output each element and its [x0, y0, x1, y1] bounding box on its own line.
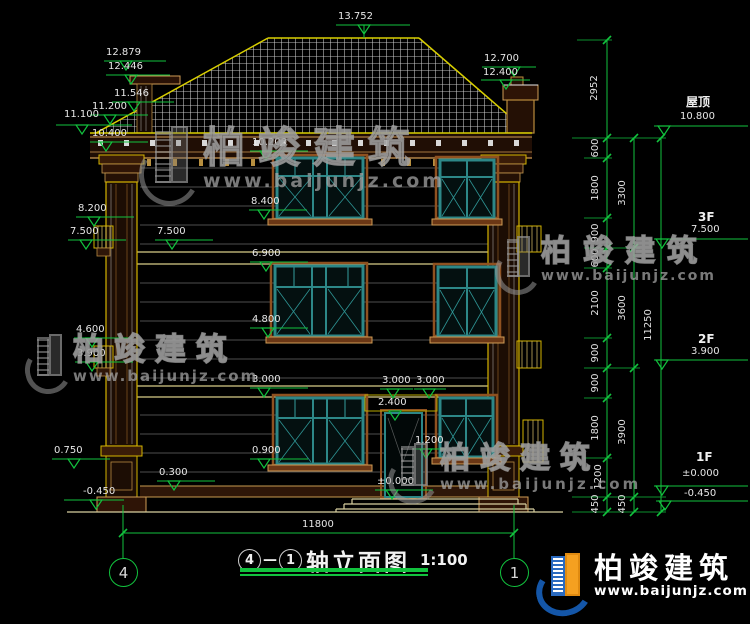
floor-name-2f: 2F [698, 333, 715, 345]
chain-dim: 600 [591, 248, 601, 267]
title-underline-thin [240, 574, 428, 576]
window-2f-right [430, 264, 504, 343]
elevation-label: 11.100 [64, 110, 99, 120]
elevation-label: 2.400 [378, 398, 407, 408]
floor-name-3f: 3F [698, 211, 715, 223]
elevation-label: ±0.000 [377, 477, 414, 487]
title-scale: 1:100 [420, 551, 468, 569]
title-underline-thick [240, 568, 428, 572]
elevation-drawing-linework [0, 0, 750, 624]
elevation-label: 3.900 [77, 349, 106, 359]
elevation-label: 0.900 [252, 446, 281, 456]
floor-name-1f: 1F [696, 451, 713, 463]
elevation-label: 1.200 [415, 436, 444, 446]
roof-outline [96, 38, 529, 133]
elevation-label: 12.446 [108, 62, 143, 72]
elevation-label: 12.879 [106, 48, 141, 58]
window-3f-center [268, 155, 372, 225]
chain-dim: 3900 [618, 419, 628, 444]
chain-dim: 2952 [590, 75, 600, 100]
elevation-label: 8.200 [78, 204, 107, 214]
chain-dim: 2100 [591, 290, 601, 315]
elevation-label: 3.000 [382, 376, 411, 386]
elevation-label: 12.700 [484, 54, 519, 64]
cad-elevation-screenshot: 13.752 12.879 12.446 12.700 12.400 11.54… [0, 0, 750, 624]
chain-dim: 900 [591, 373, 601, 392]
roof-left-eave-detail [130, 76, 180, 133]
window-3f-right [432, 157, 502, 225]
elevation-label: -0.450 [83, 487, 115, 497]
floor-elevation-1f: ±0.000 [682, 469, 719, 479]
chain-dim: 3300 [618, 180, 628, 205]
window-1f-right [432, 395, 501, 464]
elevation-label: 10.200 [252, 138, 287, 148]
elevation-label: 6.900 [252, 249, 281, 259]
chain-dim: 3600 [618, 295, 628, 320]
title-axis-from: 4 [245, 553, 254, 568]
floor-name-roof: 屋顶 [686, 96, 710, 108]
elevation-label: 7.500 [70, 227, 99, 237]
elevation-label: 3.000 [252, 375, 281, 385]
floor-elevation-ground: -0.450 [684, 489, 716, 499]
elevation-label: 12.400 [483, 68, 518, 78]
axis-bubble-4-label: 4 [119, 564, 129, 582]
chain-dim: 1800 [591, 415, 601, 440]
elevation-label: 7.500 [157, 227, 186, 237]
wall-plinth [140, 486, 488, 497]
chain-dim: 600 [591, 138, 601, 157]
elevation-label: 8.400 [251, 197, 280, 207]
chain-dim: 1200 [594, 464, 604, 489]
axis-bubble-1-label: 1 [510, 564, 520, 582]
elevation-label: 13.752 [338, 12, 373, 22]
floor-elevation-roof: 10.800 [680, 112, 715, 122]
window-2f-center [266, 263, 372, 343]
overall-width-dimension: 11800 [302, 520, 334, 530]
elevation-label: 0.750 [54, 446, 83, 456]
elevation-label: 3.000 [416, 376, 445, 386]
chain-dim: 1800 [591, 175, 601, 200]
chain-dim-total: 11250 [644, 309, 654, 341]
floor-elevation-3f: 7.500 [691, 225, 720, 235]
elevation-label: 4.800 [252, 315, 281, 325]
elevation-label: 0.300 [159, 468, 188, 478]
axis-bubble-4: 4 [109, 558, 138, 587]
title-separator: — [263, 552, 277, 568]
chain-dim: 450 [618, 494, 628, 513]
floor-elevation-2f: 3.900 [691, 347, 720, 357]
axis-bubble-1: 1 [500, 558, 529, 587]
elevation-label: 10.400 [92, 129, 127, 139]
window-1f-center [268, 395, 372, 471]
elevation-label: 4.600 [76, 325, 105, 335]
title-axis-to: 1 [286, 553, 295, 568]
elevation-label: 11.546 [114, 89, 149, 99]
chain-dim: 450 [591, 494, 601, 513]
chain-dim: 900 [591, 343, 601, 362]
chain-dim: 900 [591, 223, 601, 242]
